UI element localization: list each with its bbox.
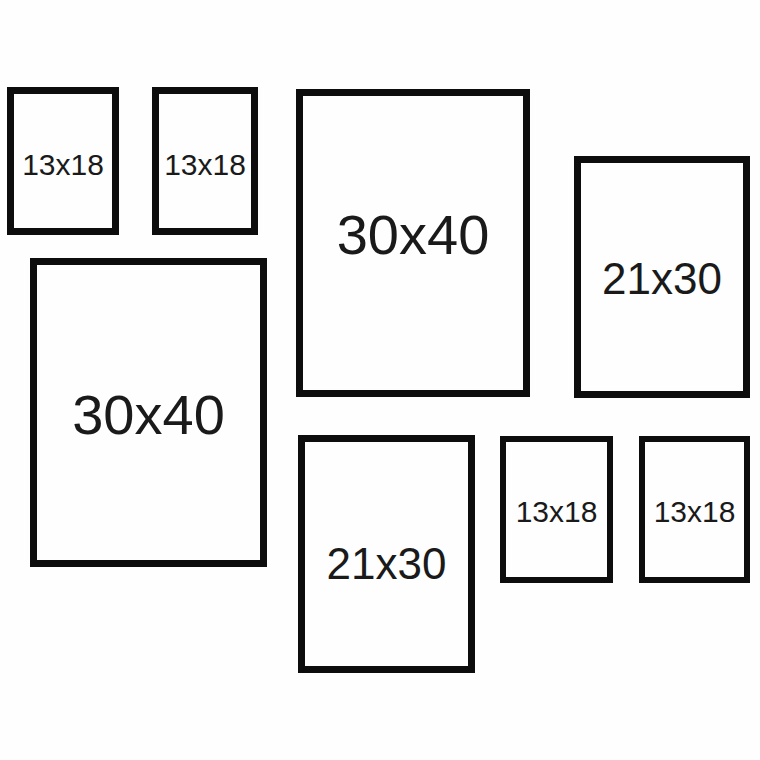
frame-size-label: 30x40 <box>72 387 225 443</box>
frame-size-label: 13x18 <box>516 497 598 527</box>
frame-21x30-right: 21x30 <box>574 156 750 398</box>
frame-30x40-left-large: 30x40 <box>30 258 267 567</box>
frame-30x40-center-top: 30x40 <box>296 89 530 397</box>
frame-13x18-top-second: 13x18 <box>152 87 258 235</box>
frame-size-label: 13x18 <box>654 497 736 527</box>
frame-size-label: 13x18 <box>22 150 104 180</box>
frame-set-diagram: 13x18 13x18 30x40 21x30 30x40 21x30 13x1… <box>0 0 760 760</box>
frame-21x30-bottom-center: 21x30 <box>298 435 475 673</box>
frame-size-label: 21x30 <box>327 542 447 586</box>
frame-size-label: 13x18 <box>164 150 246 180</box>
frame-size-label: 30x40 <box>337 207 490 263</box>
frame-13x18-top-left: 13x18 <box>7 87 119 235</box>
frame-13x18-bottom-far-right: 13x18 <box>639 436 750 583</box>
frame-size-label: 21x30 <box>602 257 722 301</box>
frame-13x18-bottom-right: 13x18 <box>500 436 613 583</box>
